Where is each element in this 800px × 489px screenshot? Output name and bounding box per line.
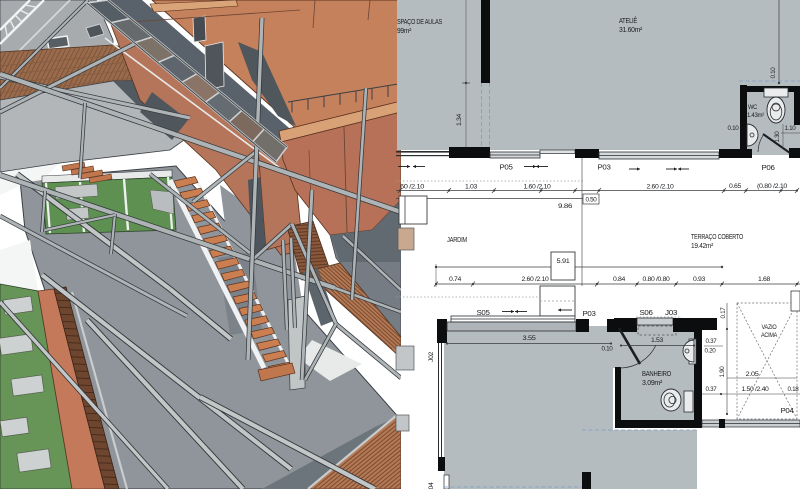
svg-text:5.91: 5.91	[557, 258, 571, 265]
svg-text:1.30: 1.30	[775, 130, 781, 142]
svg-text:P06: P06	[762, 165, 775, 172]
svg-text:0.80 /0.80: 0.80 /0.80	[643, 276, 671, 283]
svg-text:0.10: 0.10	[728, 126, 740, 132]
svg-text:P05: P05	[500, 165, 513, 172]
svg-text:P03: P03	[598, 165, 611, 172]
svg-text:0.93: 0.93	[693, 276, 706, 283]
svg-text:ACIMA: ACIMA	[761, 332, 778, 339]
svg-text:3.55: 3.55	[523, 335, 537, 342]
svg-text:1.43m²: 1.43m²	[747, 113, 764, 119]
svg-text:0.10: 0.10	[602, 347, 614, 353]
svg-text:1.60 /2.10: 1.60 /2.10	[524, 184, 552, 191]
svg-text:3.09m²: 3.09m²	[642, 380, 663, 387]
svg-text:0.37: 0.37	[706, 339, 718, 345]
svg-text:2.05: 2.05	[746, 371, 760, 378]
svg-text:J02: J02	[429, 351, 435, 362]
svg-text:VAZIO: VAZIO	[762, 324, 777, 331]
svg-text:1.34: 1.34	[456, 113, 463, 126]
svg-text:P04: P04	[781, 408, 794, 415]
svg-text:31.60m²: 31.60m²	[619, 27, 643, 34]
svg-text:J03: J03	[665, 310, 677, 317]
svg-text:2.60 /2.10: 2.60 /2.10	[522, 276, 550, 283]
svg-text:1.50 /2.40: 1.50 /2.40	[742, 386, 770, 393]
svg-text:0.65: 0.65	[729, 183, 742, 190]
svg-text:(0.80 /2.10: (0.80 /2.10	[757, 183, 788, 190]
svg-text:SPAÇO DE AULAS: SPAÇO DE AULAS	[397, 19, 442, 26]
svg-text:2.60 /2.10: 2.60 /2.10	[647, 184, 675, 191]
svg-text:JARDIM: JARDIM	[447, 237, 467, 244]
svg-text:0.20: 0.20	[705, 349, 717, 355]
svg-text:P03: P03	[583, 311, 596, 318]
svg-text:1.10: 1.10	[785, 126, 797, 132]
svg-text:99m²: 99m²	[397, 28, 412, 35]
svg-text:0.74: 0.74	[449, 276, 462, 283]
svg-text:0.50: 0.50	[586, 198, 598, 204]
svg-text:WC: WC	[748, 105, 758, 111]
svg-text:04: 04	[429, 481, 435, 489]
svg-text:0.10: 0.10	[771, 66, 777, 78]
svg-text:S06: S06	[640, 310, 653, 317]
svg-text:ATELIÊ: ATELIÊ	[619, 16, 638, 25]
svg-text:0.17: 0.17	[721, 306, 727, 318]
svg-text:0.37: 0.37	[706, 387, 718, 393]
svg-text:60 /2.10: 60 /2.10	[400, 184, 425, 191]
svg-text:1.90: 1.90	[720, 365, 726, 377]
svg-text:9.86: 9.86	[558, 203, 573, 210]
svg-text:1.03: 1.03	[465, 184, 478, 191]
svg-text:TERRAÇO COBERTO: TERRAÇO COBERTO	[691, 234, 744, 241]
svg-text:1.68: 1.68	[758, 276, 771, 283]
svg-text:BANHEIRO: BANHEIRO	[642, 371, 672, 378]
svg-text:19.42m²: 19.42m²	[691, 243, 714, 250]
svg-text:1.53: 1.53	[651, 337, 664, 344]
svg-text:0.84: 0.84	[613, 276, 626, 283]
svg-text:0.18: 0.18	[788, 386, 800, 393]
